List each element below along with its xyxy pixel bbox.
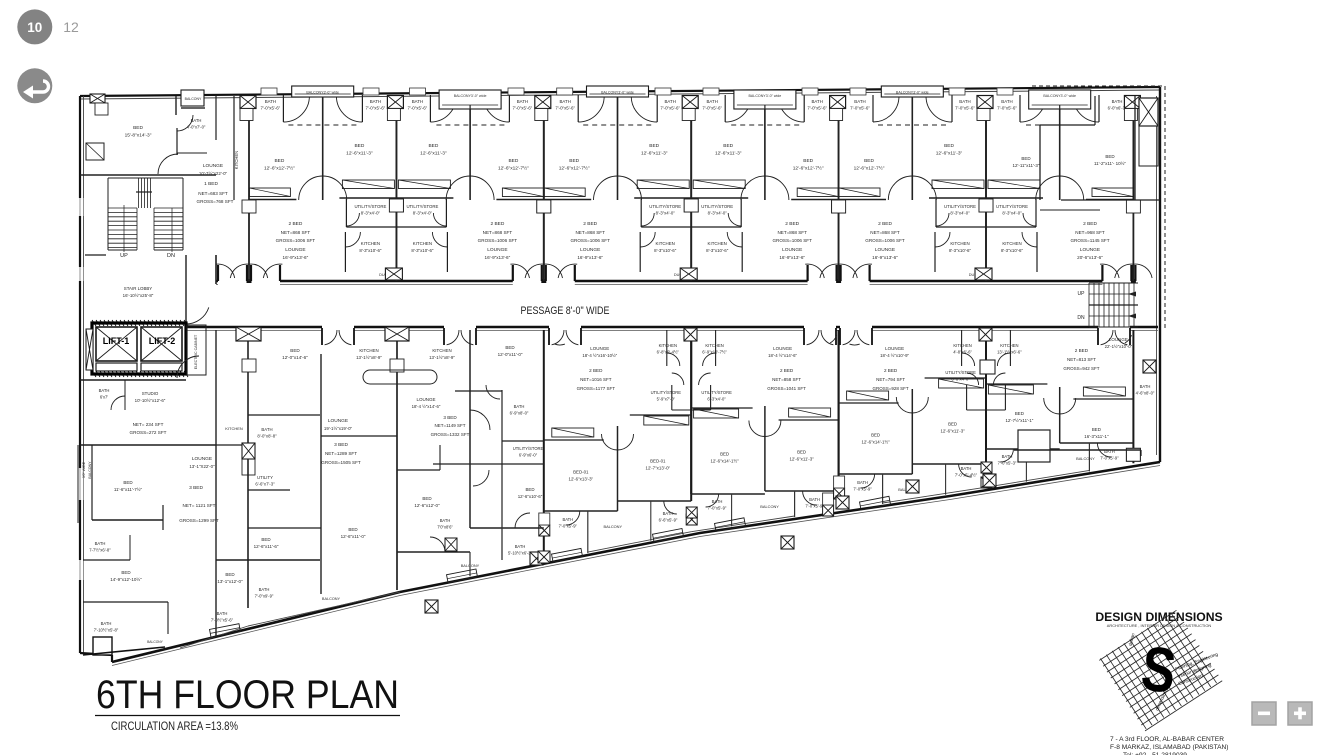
svg-text:2 BED: 2 BED [780, 368, 794, 373]
svg-text:LOUNGE: LOUNGE [203, 163, 223, 169]
svg-text:16'-10½"x25'-8": 16'-10½"x25'-8" [123, 293, 154, 298]
svg-text:2 BED: 2 BED [1075, 348, 1089, 353]
svg-text:UTILITY: UTILITY [257, 475, 273, 480]
svg-text:12'-6"x11'-3": 12'-6"x11'-3" [940, 429, 965, 434]
svg-text:DN: DN [1077, 315, 1085, 321]
svg-text:UTILITY/STORE: UTILITY/STORE [649, 204, 681, 209]
svg-text:GROSS=272 SFT: GROSS=272 SFT [130, 430, 167, 435]
svg-text:GROSS=942 SFT: GROSS=942 SFT [1063, 366, 1099, 371]
svg-text:KITCHEN: KITCHEN [950, 241, 969, 246]
svg-text:BED: BED [948, 422, 957, 427]
svg-text:NET=794 SFT: NET=794 SFT [876, 377, 905, 382]
svg-text:BATH: BATH [412, 99, 423, 104]
svg-text:KITCHEN: KITCHEN [359, 348, 378, 353]
svg-text:NET= 234 SFT: NET= 234 SFT [133, 422, 164, 427]
svg-text:6TH FLOOR PLAN: 6TH FLOOR PLAN [96, 673, 399, 717]
svg-text:2 BED: 2 BED [288, 221, 302, 227]
svg-text:12'-7½"x11'-1": 12'-7½"x11'-1" [1005, 418, 1033, 423]
svg-text:GROSS=1006 SFT: GROSS=1006 SFT [276, 238, 316, 243]
svg-text:BED: BED [723, 143, 733, 149]
svg-text:BATH: BATH [560, 99, 571, 104]
svg-text:GROSS=1177 SFT: GROSS=1177 SFT [577, 386, 616, 391]
svg-text:2 BED: 2 BED [878, 221, 892, 227]
svg-text:8'-3"x10'-6": 8'-3"x10'-6" [1001, 248, 1024, 253]
svg-text:7-7½"x6'-8": 7-7½"x6'-8" [89, 548, 111, 553]
svg-text:2 BED: 2 BED [884, 368, 898, 373]
svg-text:2 BED: 2 BED [785, 221, 799, 227]
svg-text:8'-3"x10'-6": 8'-3"x10'-6" [359, 248, 382, 253]
svg-text:15'-8"x14'-3": 15'-8"x14'-3" [125, 133, 152, 139]
svg-text:KITCHEN: KITCHEN [705, 343, 723, 348]
svg-text:GROSS=1006 SFT: GROSS=1006 SFT [865, 238, 905, 243]
svg-text:7'-0"x5'-6": 7'-0"x5'-6" [555, 106, 575, 111]
svg-text:LIFT-1: LIFT-1 [103, 336, 130, 346]
svg-text:7'-0"x5'-9": 7'-0"x5'-9" [853, 487, 872, 492]
svg-text:7'-0"x5'-6": 7'-0"x5'-6" [408, 106, 428, 111]
svg-text:BED: BED [1092, 427, 1101, 432]
svg-text:8'-3"x10'-6": 8'-3"x10'-6" [706, 248, 729, 253]
svg-text:BED: BED [1021, 156, 1031, 161]
svg-text:BATH: BATH [812, 99, 823, 104]
svg-text:8'-3"x4'-0": 8'-3"x4'-0" [708, 211, 728, 216]
svg-text:3 BED: 3 BED [334, 442, 348, 448]
svg-text:ELECTRIC CABINET: ELECTRIC CABINET [194, 334, 198, 369]
svg-text:19'-1½"x19'-0": 19'-1½"x19'-0" [324, 426, 353, 431]
svg-text:6'-6"x5'-9": 6'-6"x5'-9" [659, 518, 678, 523]
svg-text:BATH: BATH [517, 99, 528, 104]
svg-text:12'-7"x13'-0": 12'-7"x13'-0" [646, 466, 671, 471]
svg-text:BATH: BATH [514, 404, 525, 409]
svg-text:LOUNGE: LOUNGE [885, 346, 904, 351]
svg-text:NET=683 SFT: NET=683 SFT [198, 191, 228, 196]
svg-text:4'-8"x6'-6": 4'-8"x6'-6" [953, 350, 972, 355]
svg-text:BATH: BATH [261, 427, 272, 432]
svg-text:KITCHEN: KITCHEN [432, 348, 451, 353]
svg-text:GROSS=1006 SFT: GROSS=1006 SFT [478, 238, 518, 243]
svg-text:BALCONY: BALCONY [1076, 456, 1095, 461]
svg-text:12'-6"x12'-0": 12'-6"x12'-0" [414, 503, 440, 508]
svg-text:12'-11"x11'-3": 12'-11"x11'-3" [1012, 163, 1039, 168]
svg-text:16'-3"x11'-1": 16'-3"x11'-1" [1084, 434, 1109, 439]
svg-text:BALCONY: BALCONY [88, 461, 92, 479]
svg-text:3'0" WIDE: 3'0" WIDE [82, 461, 86, 478]
svg-text:BED: BED [290, 348, 300, 353]
svg-text:BED: BED [225, 572, 235, 577]
svg-text:NET= 1121 SFT: NET= 1121 SFT [183, 503, 216, 508]
svg-text:7'-0"x5'-6": 7'-0"x5'-6" [702, 106, 722, 111]
svg-text:BED: BED [261, 537, 271, 542]
svg-text:11'-6"x11'-7½": 11'-6"x11'-7½" [114, 486, 143, 492]
svg-text:BATH: BATH [809, 497, 820, 502]
svg-text:12'-6"x12'-7½": 12'-6"x12'-7½" [793, 165, 824, 172]
svg-text:LOUNGE: LOUNGE [875, 247, 895, 253]
svg-text:BATH: BATH [562, 517, 573, 522]
svg-text:7'-0"x5'-6": 7'-0"x5'-6" [513, 106, 533, 111]
svg-text:BALCONY: BALCONY [760, 504, 779, 509]
svg-text:BALCONY: BALCONY [322, 597, 341, 601]
svg-text:BATH: BATH [665, 99, 676, 104]
svg-text:2 BED: 2 BED [1083, 221, 1097, 227]
svg-text:2 BED: 2 BED [583, 221, 597, 227]
svg-text:LOUNGE: LOUNGE [1109, 337, 1128, 342]
svg-text:BATH: BATH [99, 388, 110, 393]
svg-text:BED: BED [803, 158, 813, 164]
svg-text:LOUNGE: LOUNGE [782, 247, 802, 253]
svg-text:ARCHITECTURE , INTERIOR DESIG: ARCHITECTURE , INTERIOR DESIGN & CONSTRU… [1107, 623, 1212, 628]
svg-text:BED: BED [649, 143, 659, 149]
svg-text:BATH: BATH [1140, 384, 1151, 389]
svg-text:14'-9"x12'-10½": 14'-9"x12'-10½" [110, 576, 142, 582]
svg-text:5'-9"x7'-0": 5'-9"x7'-0" [657, 397, 676, 402]
svg-text:BALCONY3'-0" wide: BALCONY3'-0" wide [749, 94, 782, 98]
svg-text:7 - A 3rd FLOOR, AL-BABAR CEN: 7 - A 3rd FLOOR, AL-BABAR CENTER [1110, 736, 1224, 743]
svg-text:7'-0"x9'-9": 7'-0"x9'-9" [255, 594, 274, 599]
svg-text:12'-6"x12'-7½": 12'-6"x12'-7½" [854, 165, 885, 172]
svg-text:6'-3"x4'-0": 6'-3"x4'-0" [951, 377, 970, 382]
svg-text:LOUNGE: LOUNGE [416, 397, 435, 402]
svg-text:GROSS=768 SFT: GROSS=768 SFT [197, 199, 234, 204]
svg-text:BATH: BATH [440, 518, 451, 523]
svg-text:12'-6"x11'-0": 12'-6"x11'-0" [341, 534, 366, 539]
svg-text:6'-8"x9'-4½": 6'-8"x9'-4½" [657, 350, 680, 355]
svg-text:BED: BED [274, 158, 284, 164]
svg-text:UTILITY/STORE: UTILITY/STORE [701, 204, 733, 209]
svg-text:8'-3"x4'-0": 8'-3"x4'-0" [413, 211, 433, 216]
svg-text:LOUNGE: LOUNGE [192, 456, 212, 462]
svg-text:12'-6"x11'-3": 12'-6"x11'-3" [715, 151, 742, 157]
svg-text:BALCONY3'-0" wide: BALCONY3'-0" wide [454, 94, 487, 98]
svg-text:7'-0"x5'-6": 7'-0"x5'-6" [261, 106, 281, 111]
svg-text:KITCHEN: KITCHEN [361, 241, 380, 246]
svg-text:KITCHEN: KITCHEN [1002, 241, 1021, 246]
svg-text:BED: BED [525, 487, 534, 492]
svg-text:10'-10½"x12'-6": 10'-10½"x12'-6" [135, 398, 166, 403]
svg-text:BATH: BATH [217, 611, 228, 616]
svg-text:LOUNGE: LOUNGE [590, 346, 609, 351]
svg-text:8'-3"x4'-0": 8'-3"x4'-0" [950, 211, 970, 216]
svg-text:6'-9"x8'-0": 6'-9"x8'-0" [510, 411, 529, 416]
svg-text:KITCHEN: KITCHEN [656, 241, 675, 246]
svg-text:BATH: BATH [857, 480, 868, 485]
svg-text:NET=858 SFT: NET=858 SFT [772, 377, 801, 382]
svg-text:PESSAGE 8'-0" WIDE: PESSAGE 8'-0" WIDE [521, 305, 610, 317]
svg-text:BATH: BATH [259, 587, 270, 592]
svg-text:8'-3"x10'-6": 8'-3"x10'-6" [654, 248, 677, 253]
svg-text:KITCHEN: KITCHEN [234, 151, 239, 169]
svg-text:7'-0"x5'-6": 7'-0"x5'-6" [955, 106, 975, 111]
svg-text:7'-0"x5'-6": 7'-0"x5'-6" [850, 106, 870, 111]
svg-text:UTILITY/STORE: UTILITY/STORE [513, 446, 544, 451]
svg-text:UTILITY/STORE: UTILITY/STORE [354, 204, 386, 209]
svg-text:NET=868 SFT: NET=868 SFT [575, 230, 605, 235]
svg-text:KITCHEN: KITCHEN [413, 241, 432, 246]
svg-text:GROSS=1505 SFT: GROSS=1505 SFT [321, 460, 361, 465]
svg-text:3 BED: 3 BED [189, 485, 203, 491]
svg-text:BATH: BATH [707, 99, 718, 104]
svg-text:7'-10½"x5'-8": 7'-10½"x5'-8" [94, 628, 119, 633]
svg-text:UTILITY/STORE: UTILITY/STORE [406, 204, 438, 209]
svg-text:7'-0"x5'-6": 7'-0"x5'-6" [807, 106, 827, 111]
svg-text:NET=1149 SFT: NET=1149 SFT [434, 423, 465, 428]
svg-text:BALCONY3'-0" wide: BALCONY3'-0" wide [306, 91, 339, 95]
svg-text:12'-6"x11'-6": 12'-6"x11'-6" [254, 544, 279, 549]
svg-text:BED: BED [797, 450, 806, 455]
svg-text:7'-0"x5'-6": 7'-0"x5'-6" [997, 106, 1017, 111]
svg-text:20'-6"x13'-6": 20'-6"x13'-6" [1077, 255, 1103, 260]
svg-text:2 BED: 2 BED [490, 221, 504, 227]
svg-text:BALCONY: BALCONY [461, 563, 480, 568]
svg-text:LOUNGE: LOUNGE [580, 247, 600, 253]
svg-text:GROSS=1145 SFT: GROSS=1145 SFT [1070, 238, 1109, 243]
svg-text:BALCONY: BALCONY [603, 524, 622, 529]
svg-text:12'-6"x14'-1½": 12'-6"x14'-1½" [861, 440, 890, 445]
svg-text:16'-9"x13'-6": 16'-9"x13'-6" [779, 255, 805, 260]
svg-text:16'-9"x13'-6": 16'-9"x13'-6" [283, 255, 309, 260]
svg-text:BATH: BATH [961, 466, 972, 471]
svg-text:10'-7½"x22'-0": 10'-7½"x22'-0" [199, 171, 228, 176]
svg-text:8'-3"x4'-0": 8'-3"x4'-0" [656, 211, 676, 216]
svg-text:18'-4 ½"x16'-10½": 18'-4 ½"x16'-10½" [582, 353, 617, 358]
svg-text:BATH: BATH [265, 99, 276, 104]
svg-text:6'x7': 6'x7' [100, 395, 109, 400]
svg-text:NET=1289 SFT: NET=1289 SFT [325, 451, 357, 456]
svg-text:12'-6"x11'-3": 12'-6"x11'-3" [641, 151, 668, 157]
svg-text:12'-6"x12'-7½": 12'-6"x12'-7½" [498, 165, 529, 172]
svg-text:6'-3"x4'-0": 6'-3"x4'-0" [707, 397, 726, 402]
svg-text:13'-1"x12'-0": 13'-1"x12'-0" [217, 579, 243, 584]
svg-text:12'-6"x14'-1½": 12'-6"x14'-1½" [710, 459, 739, 464]
svg-text:UTILITY/STORE: UTILITY/STORE [651, 390, 682, 395]
svg-text:BED: BED [569, 158, 579, 164]
svg-text:CIRCULATION AREA =13.8%: CIRCULATION AREA =13.8% [111, 719, 238, 733]
svg-text:5'-10½"x6'-3": 5'-10½"x6'-3" [508, 551, 533, 556]
svg-text:KITCHEN: KITCHEN [225, 426, 243, 431]
svg-text:6'-9"x10'-7½": 6'-9"x10'-7½" [702, 350, 727, 355]
svg-text:BED: BED [1105, 154, 1115, 159]
svg-text:LOUNGE: LOUNGE [487, 247, 507, 253]
svg-text:6'-9"x6'-0": 6'-9"x6'-0" [519, 453, 538, 458]
svg-text:KITCHEN: KITCHEN [708, 241, 727, 246]
svg-text:12'-6"x11'-3": 12'-6"x11'-3" [346, 151, 373, 157]
svg-text:7'-0"x5'-3": 7'-0"x5'-3" [998, 461, 1017, 466]
svg-text:7'-0"x5'-6": 7'-0"x5'-6" [660, 106, 680, 111]
svg-text:GROSS=1332 SFT: GROSS=1332 SFT [431, 432, 470, 437]
svg-text:10: 10 [27, 20, 42, 35]
svg-text:7'-0"x5'-9": 7'-0"x5'-9" [1100, 456, 1119, 461]
svg-text:BED-01: BED-01 [573, 470, 589, 475]
svg-text:STAIR LOBBY: STAIR LOBBY [124, 286, 153, 291]
svg-text:4'-0"x7'-0": 4'-0"x7'-0" [187, 125, 206, 130]
svg-text:GROSS=1006 SFT: GROSS=1006 SFT [570, 238, 610, 243]
svg-text:8'-3"x4'-0": 8'-3"x4'-0" [361, 211, 381, 216]
svg-text:BED-01: BED-01 [650, 459, 666, 464]
svg-text:8'-3"x10'-6": 8'-3"x10'-6" [949, 248, 972, 253]
svg-text:BALCONY: BALCONY [185, 97, 202, 101]
svg-text:UTILITY/STORE: UTILITY/STORE [701, 390, 732, 395]
svg-text:7'-0½"x5'-6": 7'-0½"x5'-6" [211, 618, 234, 623]
svg-text:STUDIO: STUDIO [142, 391, 159, 396]
svg-text:12'-6"x11'-3": 12'-6"x11'-3" [789, 457, 814, 462]
svg-text:LOUNGE: LOUNGE [773, 346, 792, 351]
svg-text:6'-6"x7'-3": 6'-6"x7'-3" [255, 482, 275, 487]
svg-text:DN: DN [167, 253, 175, 259]
svg-text:13'-1½"x6'-6": 13'-1½"x6'-6" [997, 350, 1022, 355]
svg-text:UTILITY/STORE: UTILITY/STORE [944, 204, 976, 209]
svg-text:NET=868 SFT: NET=868 SFT [870, 230, 900, 235]
svg-text:7'-0"x5'-9": 7'-0"x5'-9" [559, 524, 578, 529]
svg-text:LOUNGE: LOUNGE [285, 247, 305, 253]
svg-text:13'-1"X22'-0": 13'-1"X22'-0" [189, 464, 215, 469]
svg-text:UTILITY/STORE: UTILITY/STORE [996, 204, 1028, 209]
svg-text:BATH: BATH [191, 118, 202, 123]
svg-text:GROSS=1041 SFT: GROSS=1041 SFT [767, 386, 806, 391]
svg-text:7'0"x8'6": 7'0"x8'6" [437, 525, 453, 530]
svg-text:3 BED: 3 BED [443, 415, 457, 420]
svg-text:16'-9"x13'-6": 16'-9"x13'-6" [577, 255, 603, 260]
svg-text:BED: BED [944, 143, 954, 149]
svg-text:GROSS=1006 SFT: GROSS=1006 SFT [772, 238, 812, 243]
svg-text:BATH: BATH [1112, 99, 1123, 104]
svg-text:18'-4 ½"x10'-9": 18'-4 ½"x10'-9" [880, 353, 909, 358]
svg-text:KITCHEN: KITCHEN [1000, 343, 1018, 348]
svg-text:LOUNGE: LOUNGE [328, 418, 348, 424]
svg-text:LOUNGE: LOUNGE [1080, 247, 1100, 253]
svg-text:BED: BED [422, 496, 432, 501]
svg-text:UTILITY/STORE: UTILITY/STORE [945, 370, 976, 375]
svg-text:UP: UP [1078, 291, 1086, 297]
svg-text:BED: BED [123, 480, 133, 485]
svg-text:8'-0"x8'-8": 8'-0"x8'-8" [257, 434, 277, 439]
svg-text:8'-3"x10'-6": 8'-3"x10'-6" [411, 248, 434, 253]
svg-text:GROSS=928 SFT: GROSS=928 SFT [873, 386, 909, 391]
svg-text:BED: BED [428, 143, 438, 149]
svg-text:12'-6"x12'-7½": 12'-6"x12'-7½" [264, 165, 295, 172]
svg-text:12'-6"x13'-3": 12'-6"x13'-3" [569, 477, 594, 482]
svg-text:13'-1½"x8'-9": 13'-1½"x8'-9" [356, 355, 382, 360]
svg-text:12'-6"x11'-3": 12'-6"x11'-3" [936, 151, 963, 157]
svg-text:BALCONY3'-0" wide: BALCONY3'-0" wide [896, 91, 929, 95]
svg-text:6'-0"x6'-3": 6'-0"x6'-3" [1108, 106, 1127, 111]
svg-text:BATH: BATH [370, 99, 381, 104]
svg-text:BALCONY3'-0" wide: BALCONY3'-0" wide [1043, 94, 1076, 98]
svg-text:22'-1½"x10'-0": 22'-1½"x10'-0" [1105, 344, 1133, 349]
svg-text:BED: BED [348, 527, 358, 532]
svg-text:BALCONY3'-0" wide: BALCONY3'-0" wide [601, 91, 634, 95]
svg-text:NET=868 SFT: NET=868 SFT [777, 230, 807, 235]
svg-text:NET=868 SFT: NET=868 SFT [281, 230, 311, 235]
svg-text:BED: BED [871, 433, 880, 438]
svg-text:BED: BED [864, 158, 874, 164]
svg-text:KITCHEN: KITCHEN [953, 343, 971, 348]
svg-text:BATH: BATH [515, 544, 526, 549]
svg-text:12'-0"x14'-6": 12'-0"x14'-6" [282, 355, 308, 360]
svg-text:16'-9"x13'-6": 16'-9"x13'-6" [485, 255, 511, 260]
svg-text:NET=813 SFT: NET=813 SFT [1067, 357, 1096, 362]
svg-text:BATH: BATH [101, 621, 112, 626]
svg-text:BALCONY: BALCONY [147, 640, 164, 644]
svg-text:12'-6"x12'-7½": 12'-6"x12'-7½" [559, 165, 590, 172]
svg-text:BED: BED [505, 345, 515, 350]
svg-text:BED: BED [508, 158, 518, 164]
svg-text:7'-0"x5'-9": 7'-0"x5'-9" [805, 504, 824, 509]
svg-text:BATH: BATH [95, 541, 106, 546]
svg-text:18'-4 ½"x14'-6": 18'-4 ½"x14'-6" [412, 404, 441, 409]
svg-text:GROSS=1299 SFT: GROSS=1299 SFT [179, 518, 219, 523]
svg-text:16'-9"x13'-6": 16'-9"x13'-6" [872, 255, 898, 260]
svg-text:BED: BED [121, 570, 131, 575]
svg-text:2 BED: 2 BED [589, 368, 603, 373]
svg-text:BED: BED [354, 143, 364, 149]
svg-text:12'-0"x11'-0": 12'-0"x11'-0" [498, 352, 523, 357]
svg-text:12'-6"x11'-3": 12'-6"x11'-3" [420, 151, 447, 157]
svg-text:11'-2"x11'- 10½": 11'-2"x11'- 10½" [1094, 160, 1126, 166]
svg-text:UP: UP [120, 253, 128, 259]
svg-text:7'-0"x5'-4½": 7'-0"x5'-4½" [955, 473, 978, 478]
svg-text:12'-6"x10'-6": 12'-6"x10'-6" [518, 494, 543, 499]
svg-text:KITCHEN: KITCHEN [659, 343, 677, 348]
svg-text:NET=868 SFT: NET=868 SFT [483, 230, 513, 235]
svg-text:NET=968 SFT: NET=968 SFT [1075, 230, 1105, 235]
svg-text:BED: BED [1015, 411, 1024, 416]
svg-text:LIFT-2: LIFT-2 [149, 336, 176, 346]
svg-text:4'-6"x8'-0": 4'-6"x8'-0" [1136, 391, 1155, 396]
svg-text:18'-4 ½"x14'-6": 18'-4 ½"x14'-6" [768, 353, 797, 358]
svg-text:8'-3"x4'-0": 8'-3"x4'-0" [1002, 211, 1022, 216]
svg-text:7'-0"x5'-6": 7'-0"x5'-6" [366, 106, 386, 111]
svg-text:BED: BED [720, 452, 729, 457]
svg-text:BATH: BATH [854, 99, 865, 104]
svg-text:BATH: BATH [959, 99, 970, 104]
svg-text:12: 12 [63, 19, 79, 35]
svg-text:F-8 MARKAZ, ISLAMABAD (PAKISTA: F-8 MARKAZ, ISLAMABAD (PAKISTAN) [1110, 744, 1228, 751]
svg-text:13'-1½"x8'-9": 13'-1½"x8'-9" [429, 355, 455, 360]
svg-text:BED: BED [133, 125, 143, 131]
svg-text:BATH: BATH [1001, 99, 1012, 104]
svg-text:1 BED: 1 BED [204, 181, 218, 187]
svg-text:NET=1016 SFT: NET=1016 SFT [580, 377, 612, 382]
